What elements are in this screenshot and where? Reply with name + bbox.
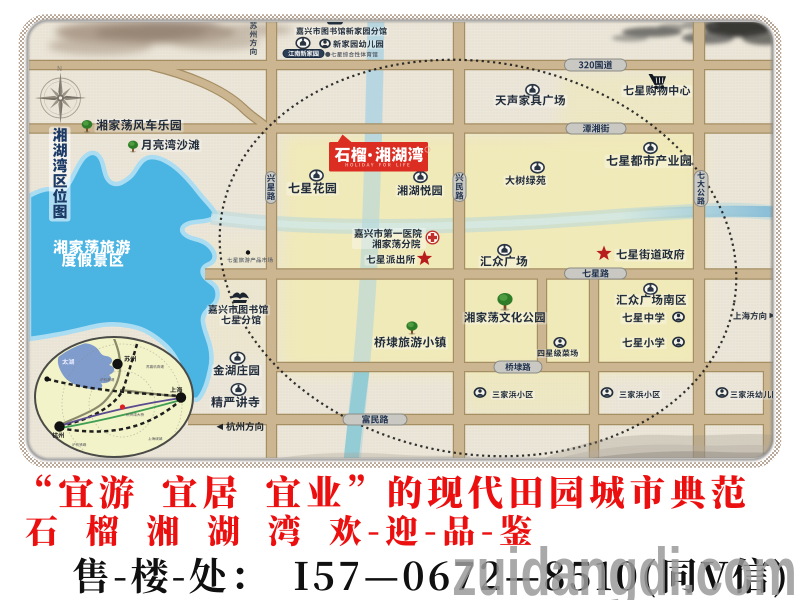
svg-text:zuidangdi.com: zuidangdi.com — [452, 534, 797, 600]
